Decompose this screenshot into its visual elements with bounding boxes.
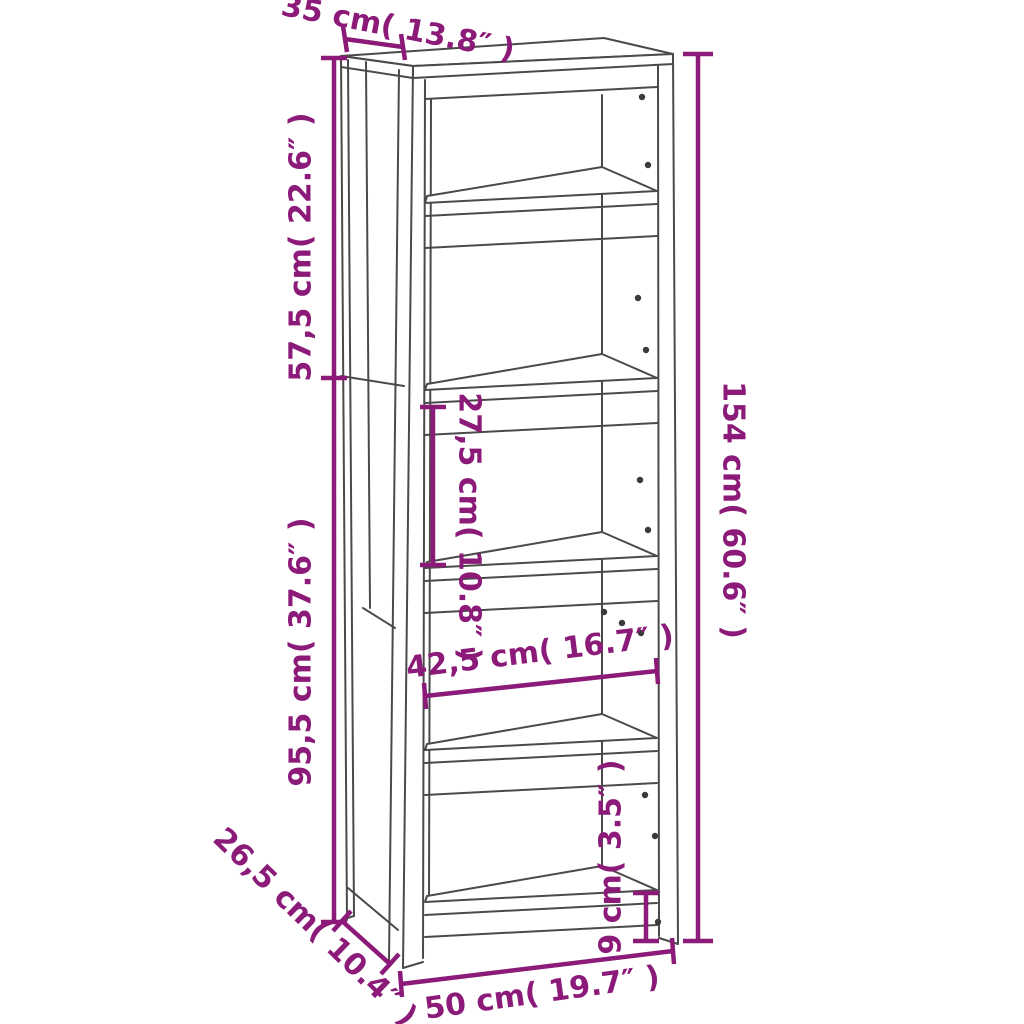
side-joint-diagonal [363,608,395,628]
side-front-stile [389,70,399,962]
dim-total-height-label: 154 cm( 60.6″ ) [716,381,751,639]
dim-shelf-gap-label: 27,5 cm( 10.8″ ) [452,392,487,661]
left-side-panel [341,56,404,962]
dim-total-height-line [683,54,713,941]
top-apron-bottom [425,87,657,99]
back-left-stile-inner [348,60,354,916]
right-stile-inner-edge [658,64,659,936]
front-left-edge [403,66,413,968]
dimension-labels: 35 cm( 13.8″ ) 57,5 cm( 22.6″ ) 95,5 cm(… [206,0,750,1024]
shelf-1 [425,167,657,248]
product-dimension-diagram: 35 cm( 13.8″ ) 57,5 cm( 22.6″ ) 95,5 cm(… [0,0,1024,1024]
front-left-leg-bottom [403,962,423,968]
dimension-lines [321,26,713,997]
dim-lower-height-label: 95,5 cm( 37.6″ ) [284,517,319,786]
dim-base-height-line [633,893,659,941]
dim-upper-height-label: 57,5 cm( 22.6″ ) [284,112,319,381]
inner-left-edge [429,100,431,898]
dim-depth-lower-label: 26,5 cm( 10.4″ ) [206,821,424,1024]
side-mid-stile [366,62,370,608]
left-stile-inner-edge [423,80,425,958]
dim-inner-width-label: 42,5 cm( 16.7″ ) [404,618,676,686]
front-right-edge [673,54,678,944]
dim-base-height-label: 9 cm( 3.5″ ) [594,759,629,954]
back-left-edge [341,56,347,920]
front-right-leg-bottom [659,938,678,944]
diagram-canvas: 35 cm( 13.8″ ) 57,5 cm( 22.6″ ) 95,5 cm(… [0,0,1024,1024]
